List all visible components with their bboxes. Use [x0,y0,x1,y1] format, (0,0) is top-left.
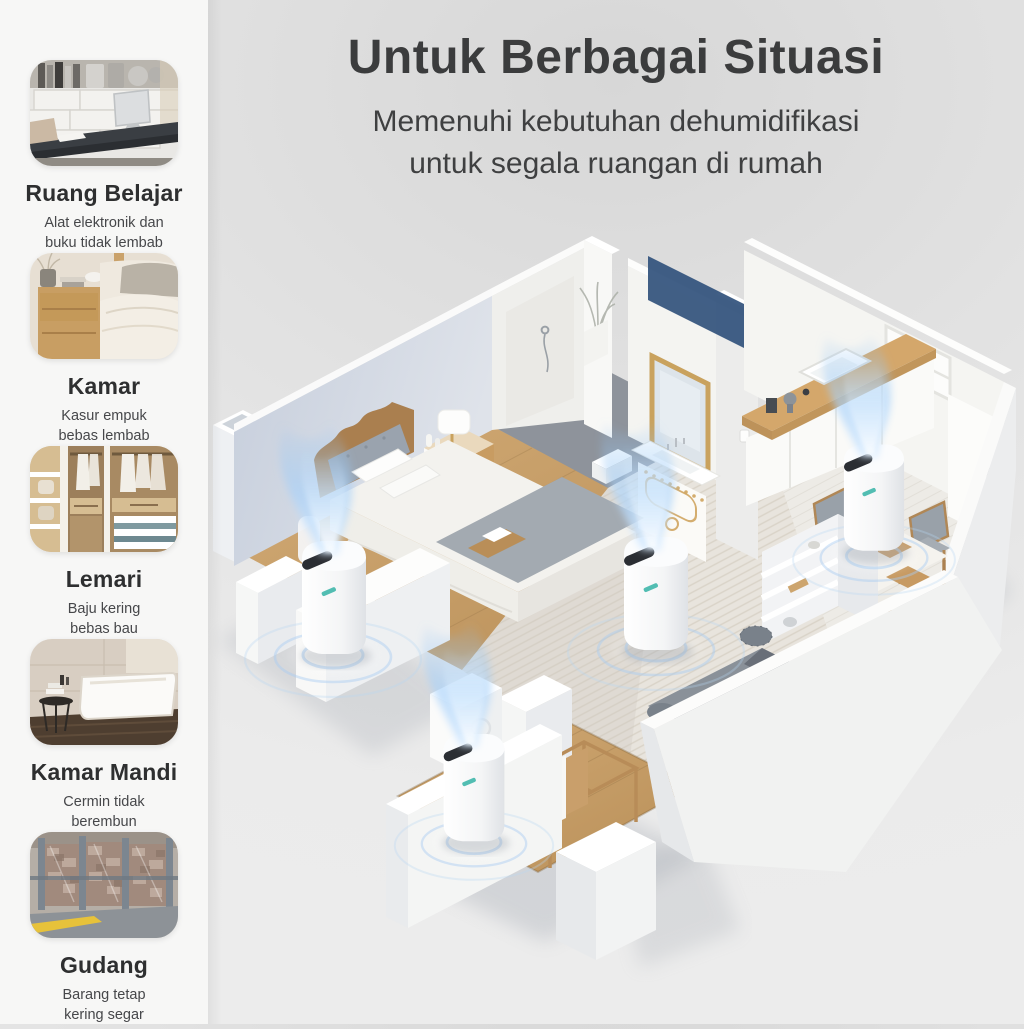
sidebar-item-desc: Kasur empuk bebas lembab [0,406,208,446]
sidebar-item-lemari: Lemari Baju kering bebas bau [0,446,208,639]
page-title: Untuk Berbagai Situasi [208,30,1024,85]
ruang-belajar-photo [30,60,178,166]
subtitle-line-2: untuk segala ruangan di rumah [208,143,1024,185]
sidebar-item-desc: Alat elektronik dan buku tidak lembab [0,213,208,253]
sidebar-item-title: Kamar Mandi [0,759,208,786]
header: Untuk Berbagai Situasi Memenuhi kebutuha… [208,30,1024,185]
sidebar-item-kamar-mandi: Kamar Mandi Cermin tidak berembun [0,639,208,832]
sidebar-item-ruang-belajar: Ruang Belajar Alat elektronik dan buku t… [0,60,208,253]
sidebar-item-title: Ruang Belajar [0,180,208,207]
subtitle-line-1: Memenuhi kebutuhan dehumidifikasi [208,101,1024,143]
sidebar-item-gudang: Gudang Barang tetap kering segar [0,832,208,1025]
lemari-photo [30,446,178,552]
kamar-photo [30,253,178,359]
sidebar-item-desc: Barang tetap kering segar [0,985,208,1025]
sidebar-item-desc: Baju kering bebas bau [0,599,208,639]
sidebar-item-title: Lemari [0,566,208,593]
sidebar-item-kamar: Kamar Kasur empuk bebas lembab [0,253,208,446]
sidebar-item-title: Kamar [0,373,208,400]
kamar-mandi-photo [30,639,178,745]
sidebar-item-desc: Cermin tidak berembun [0,792,208,832]
page-subtitle: Memenuhi kebutuhan dehumidifikasi untuk … [208,101,1024,185]
sidebar: Ruang Belajar Alat elektronik dan buku t… [0,0,208,1024]
gudang-photo [30,832,178,938]
sidebar-item-title: Gudang [0,952,208,979]
